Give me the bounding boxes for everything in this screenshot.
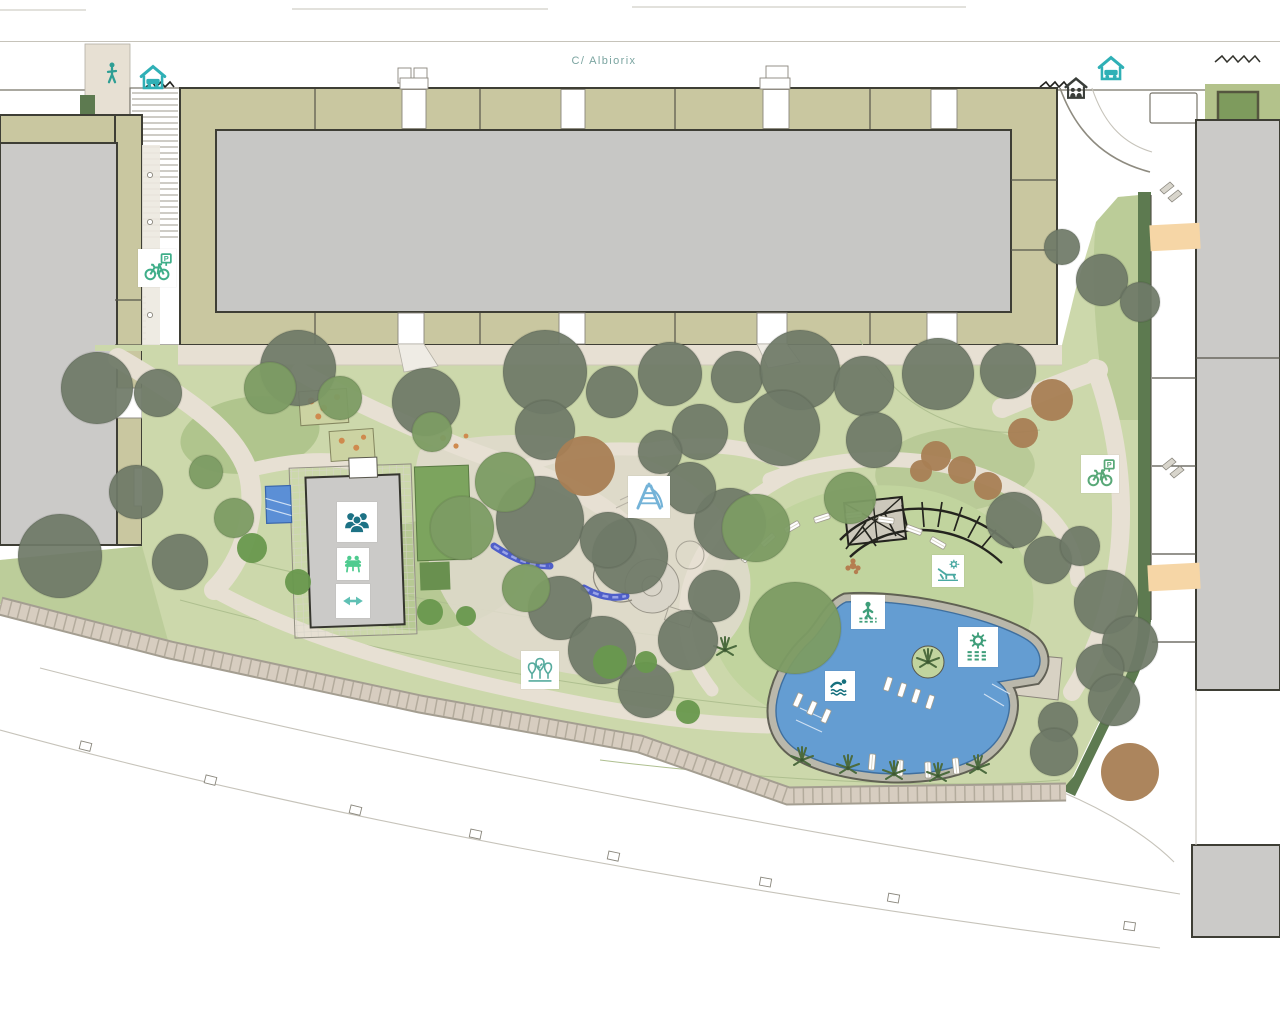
north-residential-block [180,78,1057,345]
pedestrian-entrance-icon [99,60,125,86]
car-park-entrance-west-icon [137,61,169,93]
car-park-entrance-east-icon [1095,52,1127,84]
garden-trees-icon [521,651,559,689]
swimming-pool-icon [825,671,855,701]
social-room-icon [337,548,369,580]
bike-parking-west-icon [138,249,176,287]
bike-parking-east-icon [1081,455,1119,493]
street-name-label: C/ Albiorix [572,55,637,67]
playground-icon [628,476,670,518]
sun-deck-icon [958,627,998,667]
fountain-pond [265,486,291,524]
community-room-icon [337,502,377,542]
residential-entrance-east-icon [1062,74,1090,102]
sun-loungers-icon [932,555,964,587]
wading-pool-icon [851,595,885,629]
site-plan-canvas: C/ Albiorix [0,0,1280,1024]
gym-icon [336,584,370,618]
